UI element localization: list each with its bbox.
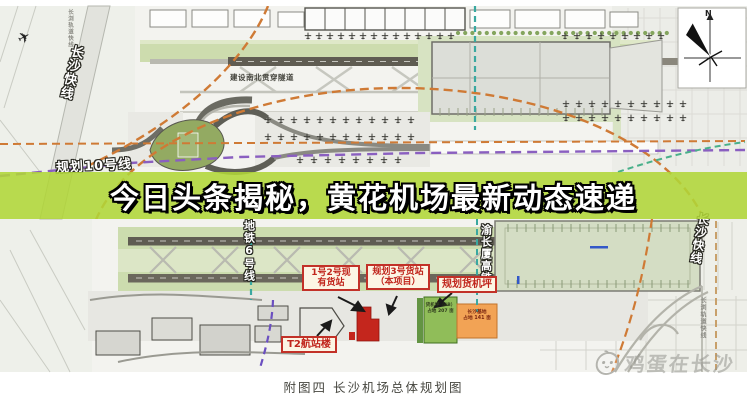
figure-caption: 附图四 长沙机场总体规划图 bbox=[0, 377, 747, 396]
info-apron-line2: 占地 207 亩 bbox=[424, 309, 457, 315]
callout-cargo-1-2: 1号2号现 有货站 bbox=[302, 265, 360, 291]
label-yuchangxia-hsr: 渝长厦高铁 bbox=[480, 224, 492, 284]
label-metro-line6: 地铁6号线 bbox=[243, 220, 255, 282]
compass-rose bbox=[678, 8, 746, 88]
headline-text: 今日头条揭秘，黄花机场最新动态速递 bbox=[110, 175, 637, 217]
callout-cargo-1-2-line2: 有货站 bbox=[306, 278, 356, 288]
watermark: 鸡蛋在长沙 bbox=[592, 348, 737, 377]
watermark-text: 鸡蛋在长沙 bbox=[623, 348, 737, 377]
screenshot-root: ✈ bbox=[0, 0, 747, 400]
chick-logo-icon bbox=[592, 349, 622, 376]
callout-cargo-3-line2: （本项目） bbox=[370, 277, 426, 287]
callout-cargo-3-line1: 规划3号货站 bbox=[370, 267, 426, 277]
callout-cargo-3: 规划3号货站 （本项目） bbox=[366, 264, 430, 290]
callout-t2-terminal: T2航站楼 bbox=[281, 336, 337, 353]
info-base-orange: 长沙基地 占地 141 亩 bbox=[457, 310, 497, 322]
info-base-line2: 占地 141 亩 bbox=[457, 316, 497, 322]
headline-banner: 今日头条揭秘，黄花机场最新动态速递 bbox=[0, 172, 747, 219]
info-apron-green: 货机坪（4B） 占地 207 亩 bbox=[424, 303, 457, 314]
label-tunnel-note: 建设南北贯穿隧道 bbox=[230, 72, 294, 83]
compass-north-label: N bbox=[705, 9, 712, 18]
label-changliu-rail-topleft: 长浏轨道快线 bbox=[66, 9, 74, 48]
info-apron-line1: 货机坪（4B） bbox=[424, 303, 457, 309]
callout-cargo-1-2-line1: 1号2号现 bbox=[306, 268, 356, 278]
callout-cargo-apron: 规划货机坪 bbox=[437, 276, 497, 293]
label-changliu-rail-right: 长浏轨道快线 bbox=[698, 297, 707, 339]
